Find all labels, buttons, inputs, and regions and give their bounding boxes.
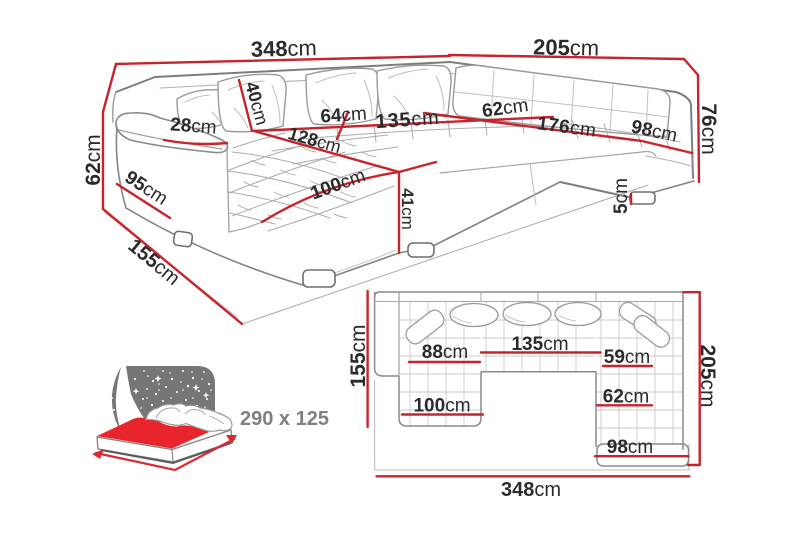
svg-text:28cm: 28cm: [169, 114, 217, 138]
svg-text:135cm: 135cm: [375, 107, 440, 133]
svg-text:100cm: 100cm: [413, 396, 470, 417]
svg-text:41cm: 41cm: [398, 188, 417, 230]
svg-text:76cm: 76cm: [697, 103, 720, 154]
svg-text:98cm: 98cm: [607, 437, 653, 458]
svg-text:59cm: 59cm: [604, 347, 650, 368]
svg-text:62cm: 62cm: [603, 386, 649, 407]
svg-text:290 x 125: 290 x 125: [240, 408, 329, 430]
svg-text:5cm: 5cm: [611, 178, 632, 214]
svg-text:348cm: 348cm: [250, 35, 317, 62]
svg-text:205cm: 205cm: [696, 344, 719, 407]
svg-text:62cm: 62cm: [82, 134, 105, 185]
svg-text:64cm: 64cm: [320, 103, 368, 127]
svg-text:348cm: 348cm: [501, 479, 561, 501]
svg-text:155cm: 155cm: [347, 324, 370, 387]
svg-text:135cm: 135cm: [511, 334, 568, 355]
svg-text:205cm: 205cm: [533, 34, 599, 60]
svg-text:88cm: 88cm: [422, 342, 468, 363]
